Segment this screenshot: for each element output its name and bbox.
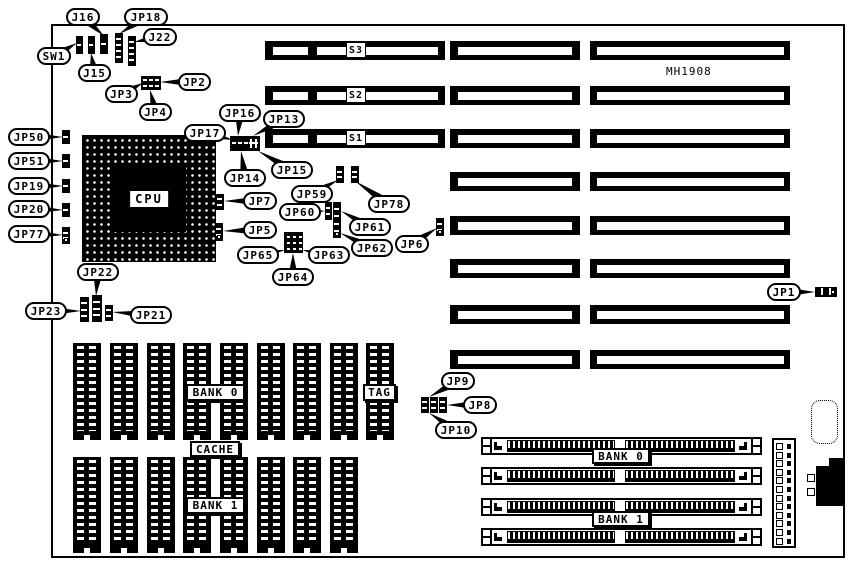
- chip-notch: [341, 548, 347, 553]
- slot-bar: [450, 86, 580, 105]
- pin-separator: [81, 315, 87, 317]
- callout-jp77: JP77: [8, 225, 50, 243]
- slot-bar: [450, 216, 580, 235]
- simm-comb-stripes: [626, 441, 734, 448]
- slot-stripe: [597, 222, 784, 230]
- simm-clip-cut: [739, 503, 744, 507]
- power-pin-socket: [776, 477, 783, 484]
- power-pin: [787, 478, 791, 483]
- slot-label: S3: [346, 42, 366, 58]
- pin-separator: [101, 43, 106, 45]
- open-pin: [831, 290, 835, 294]
- pin-separator: [334, 223, 339, 225]
- pin-mark: [143, 85, 147, 87]
- pin-separator: [437, 223, 442, 225]
- simm-clip-cut: [497, 442, 502, 446]
- slot-bar: [590, 305, 790, 324]
- simm-end-divider: [490, 500, 492, 514]
- jp22-header-a: [80, 297, 89, 322]
- pin-separator: [116, 38, 121, 40]
- chip-pin-column: [261, 346, 268, 431]
- power-pin-socket: [776, 538, 783, 545]
- slot-bar: [590, 350, 790, 369]
- pin-separator: [81, 302, 87, 304]
- chip-pin-column: [126, 460, 133, 544]
- simm-end-divider: [483, 445, 490, 447]
- chip-notch: [158, 548, 164, 553]
- simm-clip: [739, 533, 747, 541]
- pin-separator: [116, 56, 121, 58]
- slot-stripe: [317, 92, 438, 100]
- din-body: [816, 466, 845, 506]
- dip-chip: [293, 343, 321, 440]
- slot-stripe: [458, 178, 572, 186]
- slot-bar: [450, 259, 580, 278]
- simm-comb-stripes: [508, 502, 614, 509]
- dip-chip: [293, 457, 321, 553]
- callout-jp60: JP60: [279, 203, 321, 221]
- simm-clip: [494, 533, 502, 541]
- cpu-socket: CPU: [82, 135, 216, 262]
- power-pin: [787, 453, 791, 458]
- slot-bar: [450, 305, 580, 324]
- pin-mark: [244, 142, 248, 144]
- pin-separator: [217, 204, 222, 206]
- pin-separator: [89, 44, 93, 46]
- simm-socket: [481, 528, 762, 546]
- chip-pin-column: [346, 460, 353, 544]
- jp7-header: [216, 194, 224, 210]
- pin-mark: [149, 79, 153, 81]
- jp50-header: [62, 130, 70, 144]
- pin-separator: [93, 308, 100, 310]
- pin-separator: [422, 407, 427, 409]
- chip-pin-column: [151, 346, 158, 431]
- simm-end-divider: [753, 506, 760, 508]
- open-pin: [64, 238, 68, 242]
- chip-area-label: BANK 0: [186, 384, 245, 401]
- slot-bar: [450, 129, 580, 148]
- pin-mark: [287, 248, 290, 250]
- jp9-header-a: [421, 397, 429, 413]
- callout-j15: J15: [78, 64, 111, 82]
- chip-pin-column: [334, 460, 341, 544]
- pin-separator: [334, 215, 339, 217]
- simm-end-divider: [483, 536, 490, 538]
- pin-separator: [217, 198, 222, 200]
- slot-stripe: [317, 135, 438, 143]
- callout-jp65: JP65: [237, 246, 279, 264]
- simm-clip-cut: [739, 533, 744, 537]
- sw1-header: [76, 36, 83, 54]
- pin-mark: [149, 85, 153, 87]
- simm-bank-label: BANK 1: [592, 511, 650, 527]
- slot-stripe: [597, 47, 784, 55]
- simm-comb-stripes: [508, 441, 614, 448]
- slot-stripe: [458, 311, 572, 319]
- jp22-header-b: [92, 295, 102, 322]
- chip-pin-column: [77, 346, 84, 431]
- pin-mark: [299, 242, 302, 244]
- dip-chip: [110, 457, 138, 553]
- j15-header: [88, 36, 95, 54]
- chip-notch: [121, 435, 127, 440]
- callout-jp18: JP18: [124, 8, 168, 26]
- slot-stripe: [597, 311, 784, 319]
- simm-socket: [481, 467, 762, 485]
- dip-chip: [257, 457, 285, 553]
- slot-bar: [450, 172, 580, 191]
- power-pin-socket: [776, 460, 783, 467]
- simm-clip-cut: [739, 472, 744, 476]
- power-pin-socket: [776, 503, 783, 510]
- slot-bar: [590, 172, 790, 191]
- slot-stripe: [458, 356, 572, 364]
- jp2-jp3-jp4-block: [141, 76, 161, 90]
- pin-mark: [232, 142, 236, 144]
- simm-comb-stripes: [626, 471, 734, 478]
- simm-clip-cut: [497, 472, 502, 476]
- slot-bar-vlb: S1: [265, 129, 445, 148]
- jp77-header: [62, 227, 70, 244]
- jp17-jp16-jp13-header: [230, 136, 260, 151]
- callout-jp5: JP5: [243, 221, 277, 239]
- jp65-jp64-jp63-block: [284, 232, 303, 253]
- dip-chip: [257, 343, 285, 440]
- callout-jp1: JP1: [767, 283, 801, 301]
- power-connector: [772, 438, 796, 548]
- simm-clip: [739, 503, 747, 511]
- callout-jp16: JP16: [219, 104, 261, 122]
- simm-clip-cut: [739, 442, 744, 446]
- callout-jp3: JP3: [105, 85, 138, 103]
- pin-separator: [129, 47, 134, 49]
- callout-jp78: JP78: [368, 195, 410, 213]
- pin-mark: [143, 79, 147, 81]
- simm-end-divider: [483, 475, 490, 477]
- dip-chip: [330, 457, 358, 553]
- jp59-header: [336, 166, 344, 183]
- chip-notch: [341, 435, 347, 440]
- power-pin-socket: [776, 469, 783, 476]
- pin-separator: [337, 171, 342, 173]
- pin-separator: [116, 44, 121, 46]
- din-tab: [829, 458, 845, 467]
- chip-pin-column: [309, 460, 316, 544]
- callout-jp7: JP7: [243, 192, 277, 210]
- pin-mark: [238, 142, 242, 144]
- simm-end-divider: [753, 536, 760, 538]
- power-pin-socket: [776, 520, 783, 527]
- simm-clip: [494, 472, 502, 480]
- callout-jp6: JP6: [395, 235, 429, 253]
- power-pin-socket: [776, 529, 783, 536]
- pin-separator: [440, 407, 445, 409]
- power-pin: [787, 470, 791, 475]
- open-pin: [217, 235, 221, 239]
- callout-jp23: JP23: [25, 302, 67, 320]
- jp51-header: [62, 154, 70, 168]
- slot-stripe: [273, 92, 308, 100]
- power-pin-socket: [776, 495, 783, 502]
- chip-pin-column: [114, 346, 121, 431]
- simm-clip: [739, 472, 747, 480]
- din-socket-hole: [807, 488, 815, 496]
- jp78-header: [351, 166, 359, 183]
- pin-separator: [106, 315, 111, 317]
- slot-bar-vlb: S2: [265, 86, 445, 105]
- dip-chip: [110, 343, 138, 440]
- jp9-header-c: [439, 397, 447, 413]
- chip-pin-column: [89, 460, 96, 544]
- pin-separator: [93, 314, 100, 316]
- callout-jp9: JP9: [441, 372, 475, 390]
- power-pin: [787, 461, 791, 466]
- power-pin-socket: [776, 452, 783, 459]
- jp21-header: [105, 305, 113, 321]
- slot-stripe: [458, 135, 572, 143]
- pin-separator: [352, 171, 357, 173]
- pin-mark: [293, 242, 296, 244]
- chip-notch: [194, 548, 200, 553]
- pin-separator: [63, 136, 68, 138]
- simm-clip: [494, 503, 502, 511]
- chip-pin-column: [163, 346, 170, 431]
- chip-area-label: TAG: [363, 384, 396, 401]
- slot-bar: [590, 259, 790, 278]
- chip-pin-column: [151, 460, 158, 544]
- jp5-header: [215, 223, 223, 241]
- chip-pin-column: [261, 460, 268, 544]
- pin-separator: [81, 309, 87, 311]
- jp9-header-b: [430, 397, 438, 413]
- chip-notch: [377, 435, 383, 440]
- pin-separator: [326, 207, 330, 209]
- callout-jp17: JP17: [184, 124, 226, 142]
- callout-jp62: JP62: [351, 239, 393, 257]
- chip-pin-column: [273, 346, 280, 431]
- chip-notch: [268, 548, 274, 553]
- simm-clip-cut: [497, 533, 502, 537]
- slot-label: S1: [346, 130, 366, 146]
- chip-area-label: CACHE: [190, 441, 240, 457]
- chip-pin-column: [89, 346, 96, 431]
- callout-jp10: JP10: [435, 421, 477, 439]
- pin-separator: [129, 41, 134, 43]
- keyboard-connector-footprint: [811, 400, 838, 444]
- power-pin: [787, 521, 791, 526]
- simm-clip: [494, 442, 502, 450]
- pin-separator: [821, 288, 823, 295]
- pin-separator: [422, 401, 427, 403]
- dip-chip: [147, 457, 175, 553]
- chip-pin-column: [126, 346, 133, 431]
- pin-separator: [337, 176, 342, 178]
- pin-separator: [352, 176, 357, 178]
- open-pin: [335, 232, 339, 236]
- callout-j22: J22: [143, 28, 177, 46]
- callout-jp22: JP22: [77, 263, 119, 281]
- simm-contact-comb: [625, 531, 735, 543]
- simm-clip: [739, 442, 747, 450]
- chip-pin-column: [163, 460, 170, 544]
- chip-pin-column: [114, 460, 121, 544]
- callout-jp2: JP2: [178, 73, 211, 91]
- open-pin: [438, 230, 442, 234]
- slot-stripe: [597, 135, 784, 143]
- pin-separator: [431, 401, 436, 403]
- pin-mark: [299, 248, 302, 250]
- chip-notch: [304, 435, 310, 440]
- pin-mark: [249, 142, 258, 144]
- j16-header: [100, 34, 108, 54]
- jp60-header: [325, 202, 332, 220]
- pin-mark: [293, 236, 296, 238]
- simm-contact-comb: [507, 531, 615, 543]
- dip-chip: [330, 343, 358, 440]
- simm-end-divider: [483, 506, 490, 508]
- chip-pin-column: [346, 346, 353, 431]
- pin-separator: [440, 401, 445, 403]
- chip-notch: [121, 548, 127, 553]
- callout-jp64: JP64: [272, 268, 314, 286]
- callout-jp13: JP13: [263, 110, 305, 128]
- chip-notch: [84, 435, 90, 440]
- jp1-header: [815, 287, 837, 297]
- callout-jp4: JP4: [139, 103, 172, 121]
- simm-contact-comb: [507, 470, 615, 482]
- chip-notch: [158, 435, 164, 440]
- slot-stripe: [273, 47, 308, 55]
- pin-mark: [299, 236, 302, 238]
- callout-jp15: JP15: [271, 161, 313, 179]
- callout-jp63: JP63: [308, 246, 350, 264]
- slot-stripe: [458, 265, 572, 273]
- simm-end-divider: [753, 475, 760, 477]
- slot-stripe: [458, 47, 572, 55]
- motherboard-jumper-diagram: S3S2S1 CPU MH1908 BANK 0TAGCACHEBANK 1 B…: [0, 0, 850, 567]
- pin-separator: [63, 185, 68, 187]
- dip-chip: [73, 457, 101, 553]
- callout-jp8: JP8: [463, 396, 497, 414]
- slot-stripe: [597, 265, 784, 273]
- simm-comb-stripes: [508, 471, 614, 478]
- pin-separator: [216, 228, 221, 230]
- chip-pin-column: [297, 460, 304, 544]
- pin-mark: [293, 248, 296, 250]
- pin-mark: [287, 242, 290, 244]
- chip-pin-column: [297, 346, 304, 431]
- simm-comb-stripes: [626, 532, 734, 539]
- callout-sw1: SW1: [37, 47, 71, 65]
- pin-separator: [106, 309, 111, 311]
- chip-notch: [231, 435, 237, 440]
- callout-jp50: JP50: [8, 128, 50, 146]
- slot-label: S2: [346, 87, 366, 103]
- chip-pin-column: [77, 460, 84, 544]
- simm-clip-cut: [497, 503, 502, 507]
- pin-separator: [77, 44, 81, 46]
- pin-separator: [431, 407, 436, 409]
- slot-bar: [450, 350, 580, 369]
- callout-j16: J16: [66, 8, 100, 26]
- power-pin-socket: [776, 512, 783, 519]
- simm-end-divider: [490, 469, 492, 483]
- simm-comb-stripes: [626, 502, 734, 509]
- din-socket-hole: [807, 474, 815, 482]
- pin-separator: [326, 213, 330, 215]
- chip-notch: [268, 435, 274, 440]
- callout-jp20: JP20: [8, 200, 50, 218]
- pin-separator: [116, 50, 121, 52]
- power-pin: [787, 487, 791, 492]
- slot-stripe: [458, 222, 572, 230]
- cpu-label: CPU: [130, 191, 168, 207]
- simm-contact-comb: [625, 470, 735, 482]
- callout-jp14: JP14: [224, 169, 266, 187]
- pin-separator: [129, 53, 134, 55]
- callout-jp19: JP19: [8, 177, 50, 195]
- pin-separator: [129, 59, 134, 61]
- callout-jp61: JP61: [349, 218, 391, 236]
- chip-notch: [231, 548, 237, 553]
- pin-mark: [155, 79, 159, 81]
- power-pin: [787, 530, 791, 535]
- slot-bar: [590, 41, 790, 60]
- slot-stripe: [597, 178, 784, 186]
- pin-separator: [93, 301, 100, 303]
- slot-bar: [450, 41, 580, 60]
- jp6-header: [436, 218, 444, 236]
- callout-jp21: JP21: [130, 306, 172, 324]
- jp20-header: [62, 203, 70, 217]
- chip-area-label: BANK 1: [186, 497, 245, 514]
- power-pin-socket: [776, 486, 783, 493]
- slot-stripe: [458, 92, 572, 100]
- pin-separator: [334, 208, 339, 210]
- simm-end-divider: [753, 445, 760, 447]
- pin-separator: [63, 232, 68, 234]
- pin-mark: [155, 85, 159, 87]
- simm-end-divider: [490, 530, 492, 544]
- jp61-jp62-header: [333, 202, 341, 238]
- j22-header: [128, 36, 136, 66]
- pin-mark: [287, 236, 290, 238]
- chip-pin-column: [309, 346, 316, 431]
- chip-notch: [84, 548, 90, 553]
- callout-jp59: JP59: [291, 185, 333, 203]
- simm-comb-stripes: [508, 532, 614, 539]
- chip-pin-column: [334, 346, 341, 431]
- chip-notch: [304, 548, 310, 553]
- power-pin: [787, 539, 791, 544]
- power-pin: [787, 496, 791, 501]
- power-pin: [787, 444, 791, 449]
- slot-stripe: [597, 356, 784, 364]
- chip-pin-column: [273, 460, 280, 544]
- slot-bar: [590, 86, 790, 105]
- dip-chip: [73, 343, 101, 440]
- power-pin: [787, 513, 791, 518]
- slot-bar-vlb: S3: [265, 41, 445, 60]
- slot-stripe: [273, 135, 308, 143]
- slot-bar: [590, 129, 790, 148]
- slot-stripe: [597, 92, 784, 100]
- callout-jp51: JP51: [8, 152, 50, 170]
- power-pin-socket: [776, 443, 783, 450]
- pin-separator: [63, 209, 68, 211]
- jp18-header: [115, 33, 123, 63]
